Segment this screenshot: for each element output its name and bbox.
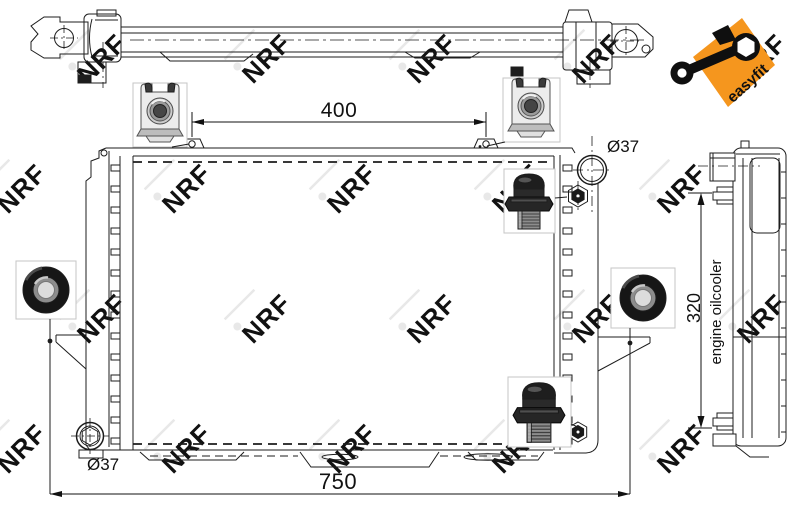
oilcooler-fitting-top <box>713 187 733 204</box>
right-side-bracket <box>598 337 650 371</box>
beam-lines <box>121 27 563 57</box>
dim-320-label: 320 <box>684 293 704 323</box>
easyfit-badge: easyfit <box>671 18 776 107</box>
side-foot <box>713 434 736 446</box>
plug-leader-top <box>555 197 567 198</box>
dim-400-label: 400 <box>321 99 358 122</box>
left-end-bracket <box>31 17 88 58</box>
top-port-diameter-label: Ø37 <box>607 137 639 156</box>
drawing-canvas: NRF <box>0 0 800 508</box>
side-top-stub <box>741 141 749 148</box>
engine-oilcooler-label: engine oilcooler <box>708 259 725 364</box>
oilcooler-fitting-bottom <box>713 413 733 430</box>
left-side-bracket <box>56 335 86 369</box>
right-mount-cap <box>565 10 592 22</box>
inlet-pipe <box>710 153 735 181</box>
radiator-technical-drawing: NRF <box>0 0 800 508</box>
dim-750-label: 750 <box>319 469 357 494</box>
bottom-port-diameter-label: Ø37 <box>87 455 119 474</box>
side-edge-ticks <box>781 172 786 432</box>
right-bracket-small-hole <box>642 45 650 53</box>
